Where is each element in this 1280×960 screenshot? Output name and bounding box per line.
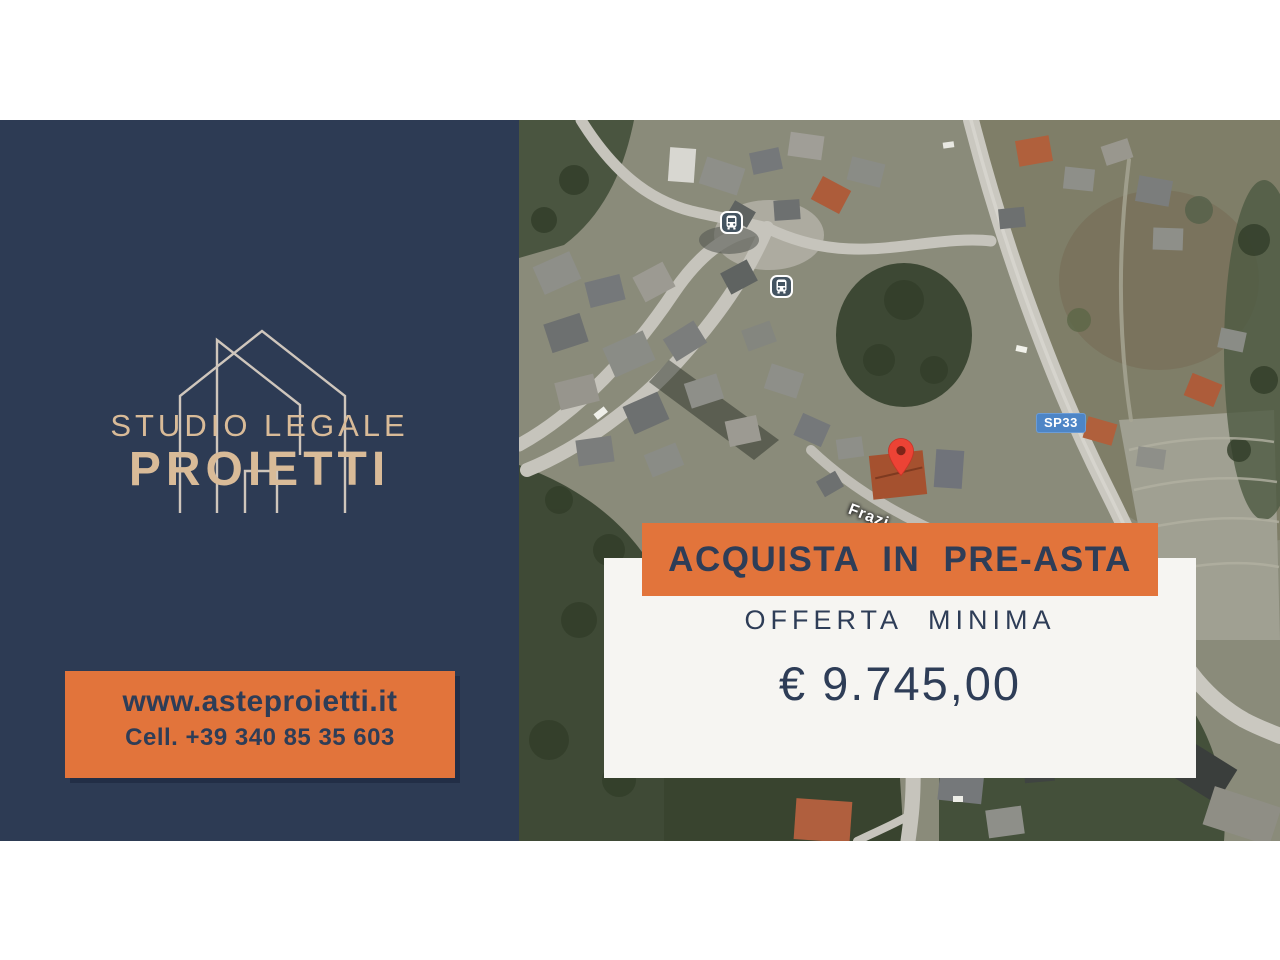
brand-title-line2: PROIETTI [0, 442, 519, 497]
map-pin-icon [887, 437, 915, 477]
offer-amount: € 9.745,00 [604, 656, 1196, 711]
brand-panel: STUDIO LEGALE PROIETTI www.asteproietti.… [0, 120, 519, 841]
offer-card: ACQUISTA IN PRE-ASTA OFFERTA MINIMA € 9.… [604, 523, 1196, 778]
phone-text: Cell. +39 340 85 35 603 [65, 724, 455, 752]
bus-stop-icon [770, 275, 793, 298]
bus-stop-icon [720, 211, 743, 234]
contact-box: www.asteproietti.it Cell. +39 340 85 35 … [65, 671, 455, 778]
real-estate-flyer: STUDIO LEGALE PROIETTI www.asteproietti.… [0, 0, 1280, 960]
satellite-map: Frazi SP33 ACQUISTA IN PRE-ASTA OFFERTA … [519, 120, 1280, 841]
offer-banner: ACQUISTA IN PRE-ASTA [642, 523, 1158, 596]
website-text: www.asteproietti.it [65, 685, 455, 719]
brand-title-line1: STUDIO LEGALE [0, 408, 519, 444]
offer-minimum-label: OFFERTA MINIMA [604, 605, 1196, 636]
road-badge-sp33: SP33 [1036, 413, 1086, 433]
